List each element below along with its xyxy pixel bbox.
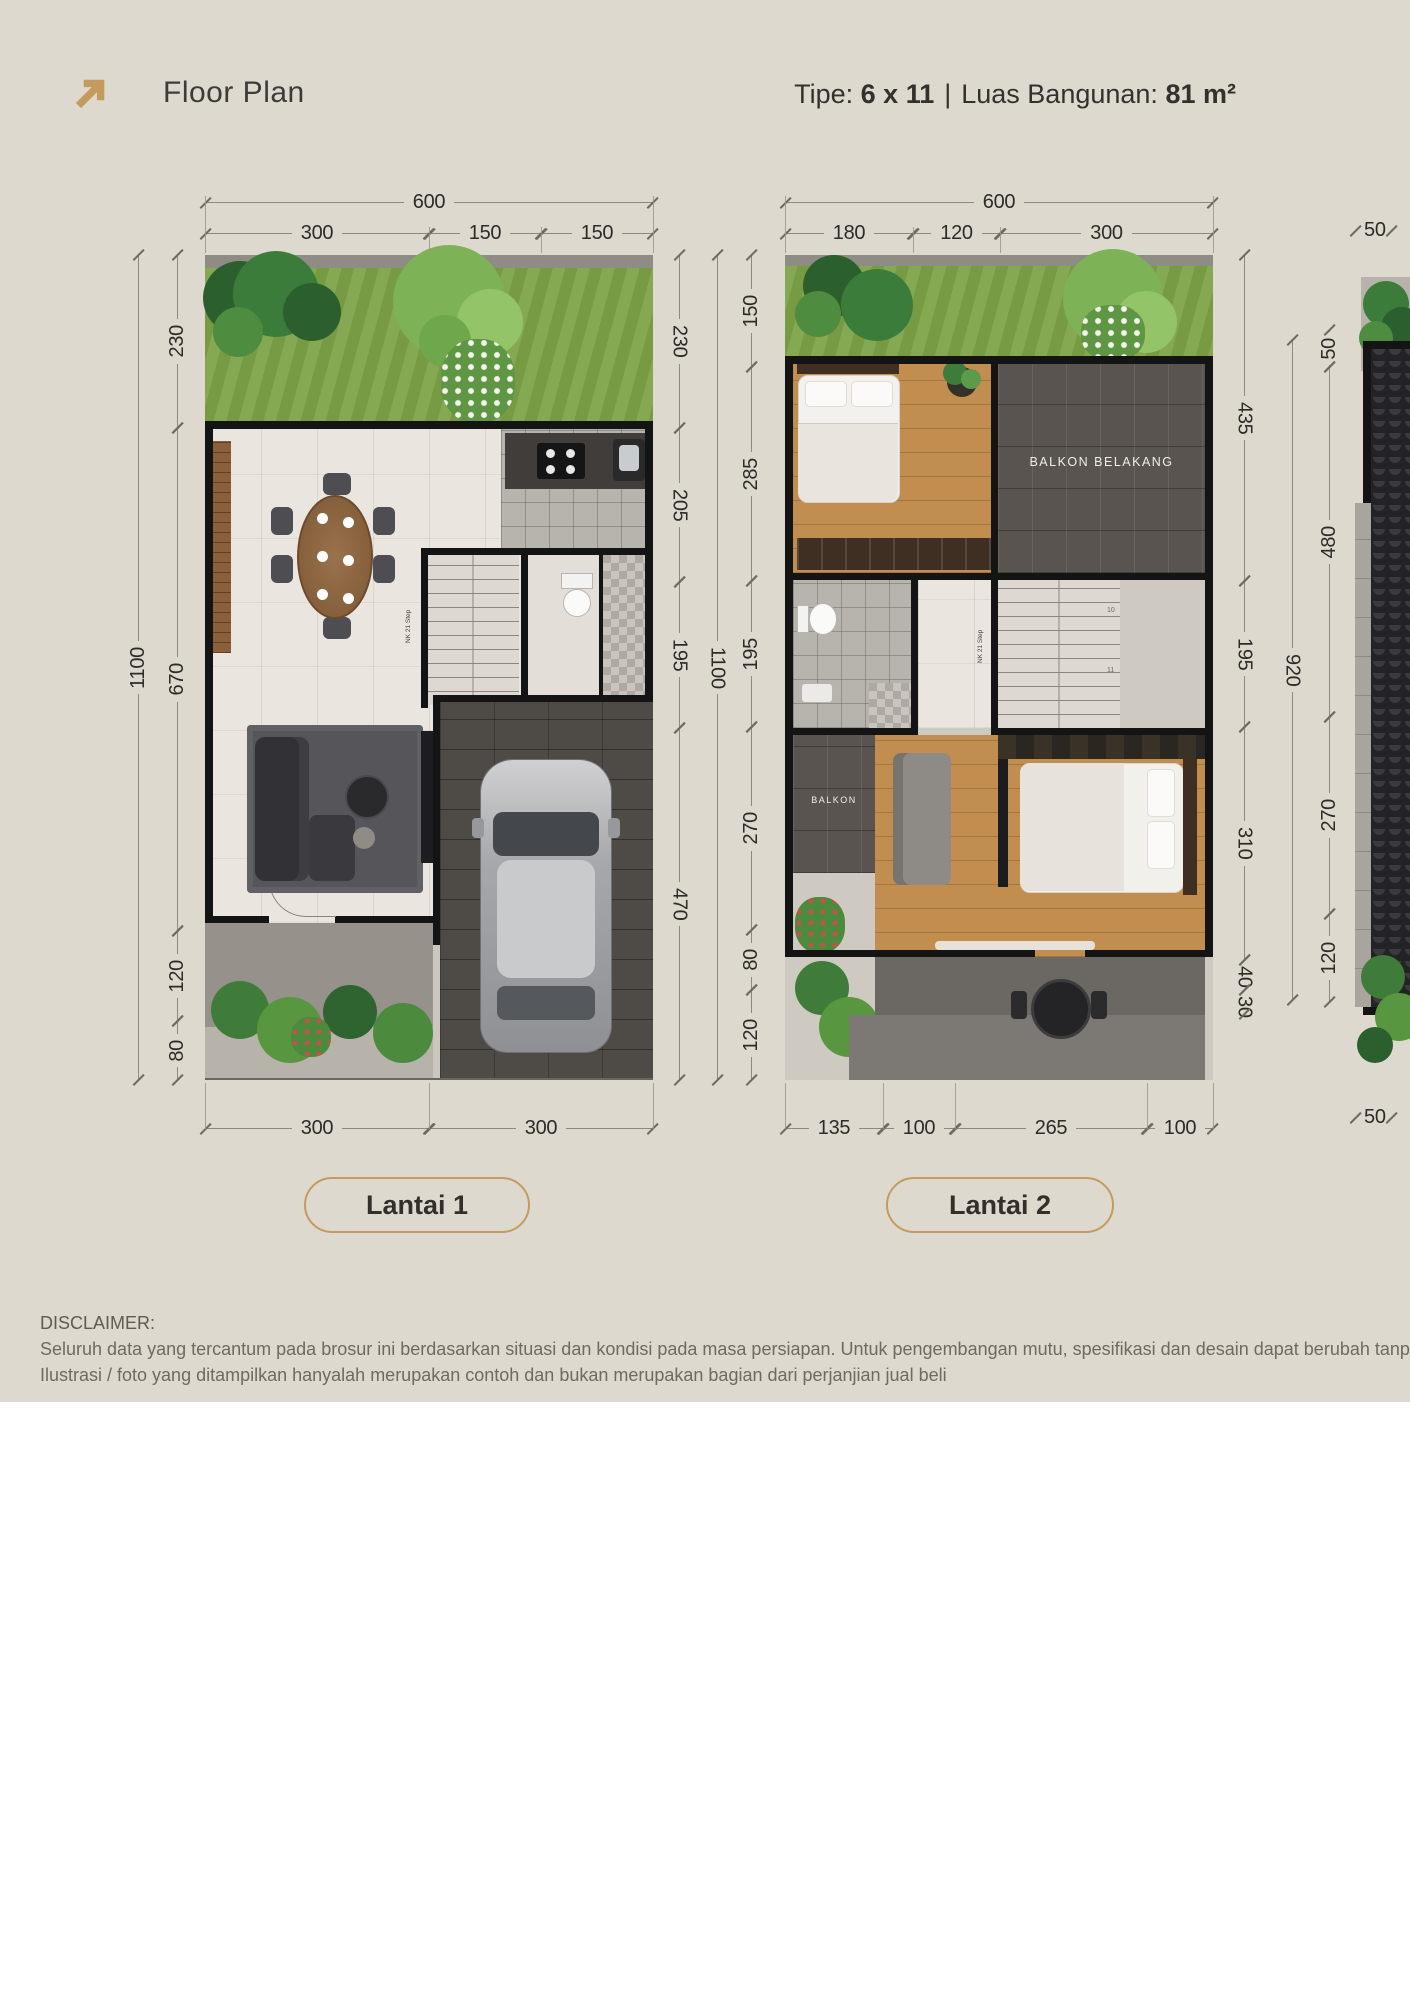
- witness-line: [653, 196, 654, 253]
- wall-bath2-b: [785, 728, 918, 735]
- toilet-tank: [561, 573, 593, 589]
- car-body: [481, 760, 611, 1052]
- pillow: [851, 381, 893, 407]
- witness-line: [653, 1083, 654, 1129]
- dining-table: [297, 495, 373, 619]
- wall-balcony: [991, 573, 1213, 580]
- dim-f1-top-seg: 150: [541, 222, 653, 244]
- toilet-bowl: [563, 589, 591, 617]
- deck-lower: [849, 1015, 1205, 1080]
- badge-lantai-1-label: Lantai 1: [366, 1190, 468, 1221]
- brochure-page: Floor Plan Tipe: 6 x 11|Luas Bangunan: 8…: [0, 0, 1410, 2000]
- badge-lantai-2-label: Lantai 2: [949, 1190, 1051, 1221]
- car-mirror: [608, 818, 620, 838]
- shrub: [1357, 1027, 1393, 1063]
- bush: [213, 307, 263, 357]
- stairs-note: NK 21 Step: [977, 611, 984, 681]
- wall-bath2: [911, 580, 918, 735]
- wall-front-a: [205, 916, 269, 923]
- wall-bath: [521, 548, 528, 701]
- dim-f3-left-seg: 120: [1318, 914, 1340, 1002]
- flower-shrub: [291, 1017, 331, 1057]
- side-path: [1355, 503, 1371, 1007]
- table-plates: [317, 513, 328, 524]
- stove-burners: [546, 449, 555, 458]
- patio-chair: [1011, 991, 1027, 1019]
- dim-f3-left-seg: 270: [1318, 717, 1340, 914]
- patio-chair: [1091, 991, 1107, 1019]
- floor-plan-lantai-2: BALKON BELAKANG 10 11 NK 21 Step BALKON: [785, 255, 1213, 1080]
- dim-f2-left-seg: 150: [740, 255, 762, 367]
- staircase: [427, 555, 519, 705]
- stairs-note: NK 21 Step: [405, 591, 412, 661]
- wall-garage-side: [433, 695, 440, 945]
- dim-f2-bottom-seg: 100: [1147, 1117, 1213, 1139]
- dining-chair: [271, 555, 293, 583]
- shower-wall: [599, 555, 603, 701]
- roof-shingles: [1371, 349, 1410, 1007]
- witness-line: [205, 196, 206, 253]
- wall-mid: [421, 548, 653, 555]
- dim-f2-top-seg: 300: [1000, 222, 1213, 244]
- sofa: [255, 737, 309, 881]
- pillow: [805, 381, 847, 407]
- dim-f2-left-seg: 285: [740, 367, 762, 581]
- dining-chair: [373, 555, 395, 583]
- wall-left: [785, 356, 793, 957]
- witness-line: [883, 1083, 884, 1129]
- side-table: [353, 827, 375, 849]
- witness-line: [785, 1083, 786, 1129]
- shrub: [323, 985, 377, 1039]
- staircase2: [998, 580, 1120, 728]
- bed2-headboard: [797, 364, 899, 374]
- dining-chair: [373, 507, 395, 535]
- witness-line: [205, 1083, 206, 1129]
- master-wardrobe: [998, 735, 1205, 759]
- dim-f2-left-seg: 195: [740, 581, 762, 727]
- dim-f2-left-seg: 120: [740, 990, 762, 1080]
- floor-plan-partial-roof: [1355, 255, 1410, 1080]
- dim-f2-right-seg: 310: [1233, 727, 1255, 960]
- stair-number: 10: [1107, 607, 1115, 614]
- wall-stairs2: [991, 580, 998, 735]
- car-windshield: [493, 812, 599, 856]
- shower2: [869, 683, 911, 728]
- sofa-chaise: [309, 815, 355, 881]
- arrow-up-right-icon: [70, 76, 108, 114]
- pillow: [1147, 821, 1175, 869]
- coffee-table: [345, 775, 389, 819]
- area-label: Luas Bangunan:: [961, 79, 1158, 109]
- floor-plan-lantai-1: NK 21 Step: [205, 255, 653, 1080]
- witness-line: [1147, 1083, 1148, 1129]
- dim-f1-top-seg: 300: [205, 222, 429, 244]
- type-value: 6 x 11: [861, 79, 935, 109]
- plot-edge: [205, 1078, 653, 1080]
- dim-f1-right-seg: 230: [668, 255, 690, 428]
- dim-f2-left-seg: 270: [740, 727, 762, 930]
- witness-line: [429, 1083, 430, 1129]
- bush: [841, 269, 913, 341]
- dim-f1-left-seg: 80: [166, 1021, 188, 1080]
- wall-front-b: [335, 916, 433, 923]
- dim-f1-right-seg: 195: [668, 582, 690, 728]
- shrub: [373, 1003, 433, 1063]
- type-spec: Tipe: 6 x 11|Luas Bangunan: 81 m²: [794, 79, 1236, 110]
- toilet2-tank: [797, 605, 809, 633]
- dim-f2-right-outer: 920: [1281, 340, 1303, 1000]
- witness-line: [541, 227, 542, 253]
- car-rear-window: [497, 986, 595, 1020]
- dim-f1-left-seg: 230: [166, 255, 188, 428]
- wall-cabinet: [213, 441, 231, 653]
- witness-line: [1213, 1083, 1214, 1129]
- area-value: 81 m²: [1165, 79, 1236, 109]
- dining-chair: [323, 473, 351, 495]
- dim-f1-top-seg: 150: [429, 222, 541, 244]
- dim-f2-right-seg: 30: [1233, 990, 1255, 1014]
- master-duvet: [1020, 763, 1124, 891]
- bed2-duvet: [798, 423, 898, 502]
- witness-line: [913, 227, 914, 253]
- wall-stairs: [421, 548, 428, 708]
- wall-garage: [433, 695, 653, 702]
- pillow: [1147, 769, 1175, 817]
- spec-divider: |: [944, 79, 951, 109]
- disclaimer-line: Seluruh data yang tercantum pada brosur …: [40, 1336, 1410, 1362]
- sink-basin: [619, 445, 639, 471]
- disclaimer-line: Ilustrasi / foto yang ditampilkan hanyal…: [40, 1362, 1410, 1388]
- type-label: Tipe:: [794, 79, 853, 109]
- dim-f2-bottom-seg: 265: [955, 1117, 1147, 1139]
- dim-f1-right-outer: 1100: [706, 255, 728, 1080]
- dim-f3-top: 50: [1355, 219, 1392, 241]
- toilet2-bowl: [809, 603, 837, 635]
- dim-f1-right-seg: 205: [668, 428, 690, 582]
- dim-f3-left-seg: 50: [1318, 330, 1340, 367]
- disclaimer-heading: DISCLAIMER:: [40, 1310, 1410, 1336]
- dim-f1-left-seg: 120: [166, 931, 188, 1021]
- witness-line: [1213, 196, 1214, 253]
- dim-f2-bottom-seg: 135: [785, 1117, 883, 1139]
- dim-f2-top-seg: 180: [785, 222, 913, 244]
- dim-f2-total: 600: [785, 191, 1213, 213]
- balcony-trim: [935, 941, 1095, 950]
- wall-bedroom: [785, 573, 998, 580]
- bush: [795, 291, 841, 337]
- dim-f2-top-seg: 120: [913, 222, 1000, 244]
- tv-console2: [998, 759, 1008, 887]
- wall-right: [1205, 356, 1213, 957]
- dim-f3-left-seg: 480: [1318, 367, 1340, 717]
- dining-chair: [323, 617, 351, 639]
- side-balcony-label: BALKON: [793, 795, 875, 805]
- car-roof: [497, 860, 595, 978]
- flower-patch: [1081, 305, 1145, 361]
- dim-f1-left-seg: 670: [166, 428, 188, 931]
- wall-divider: [991, 356, 998, 580]
- dim-f1-total: 600: [205, 191, 653, 213]
- back-balcony-label: BALKON BELAKANG: [998, 455, 1205, 469]
- dim-f2-right-seg: 40: [1233, 960, 1255, 990]
- stair-number: 11: [1107, 667, 1114, 674]
- disclaimer: DISCLAIMER: Seluruh data yang tercantum …: [40, 1310, 1410, 1388]
- flower-shrub: [795, 897, 845, 953]
- wall-top: [205, 421, 653, 429]
- page-title: Floor Plan: [163, 76, 305, 110]
- dim-f1-bottom-seg: 300: [205, 1117, 429, 1139]
- sofa2: [893, 753, 951, 885]
- wall-master: [991, 728, 1213, 735]
- dim-f2-right-seg: 435: [1233, 255, 1255, 581]
- master-headboard: [1183, 759, 1197, 895]
- wall-top: [785, 356, 1213, 364]
- wall-left: [205, 421, 213, 923]
- sink2: [801, 683, 833, 703]
- car-mirror: [472, 818, 484, 838]
- plant: [961, 369, 981, 389]
- dim-f2-right-seg: 195: [1233, 581, 1255, 727]
- dim-f3-bottom: 50: [1355, 1106, 1392, 1128]
- witness-line: [955, 1083, 956, 1129]
- dim-f1-left-outer: 1100: [127, 255, 149, 1080]
- wall-front-a: [785, 950, 1035, 957]
- bush: [283, 283, 341, 341]
- dining-chair: [271, 507, 293, 535]
- dim-f1-right-seg: 470: [668, 728, 690, 1080]
- tv-console: [421, 731, 433, 863]
- witness-line: [785, 196, 786, 253]
- patio-table: [1031, 979, 1091, 1039]
- wardrobe: [797, 538, 991, 570]
- dim-f2-left-seg: 80: [740, 930, 762, 990]
- dim-f1-bottom-seg: 300: [429, 1117, 653, 1139]
- stove: [537, 443, 585, 479]
- witness-line: [1000, 227, 1001, 253]
- badge-lantai-2[interactable]: Lantai 2: [886, 1177, 1114, 1233]
- witness-line: [429, 227, 430, 253]
- flower-patch: [441, 339, 515, 423]
- dim-f2-bottom-seg: 100: [883, 1117, 955, 1139]
- wall-front-b: [1085, 950, 1213, 957]
- badge-lantai-1[interactable]: Lantai 1: [304, 1177, 530, 1233]
